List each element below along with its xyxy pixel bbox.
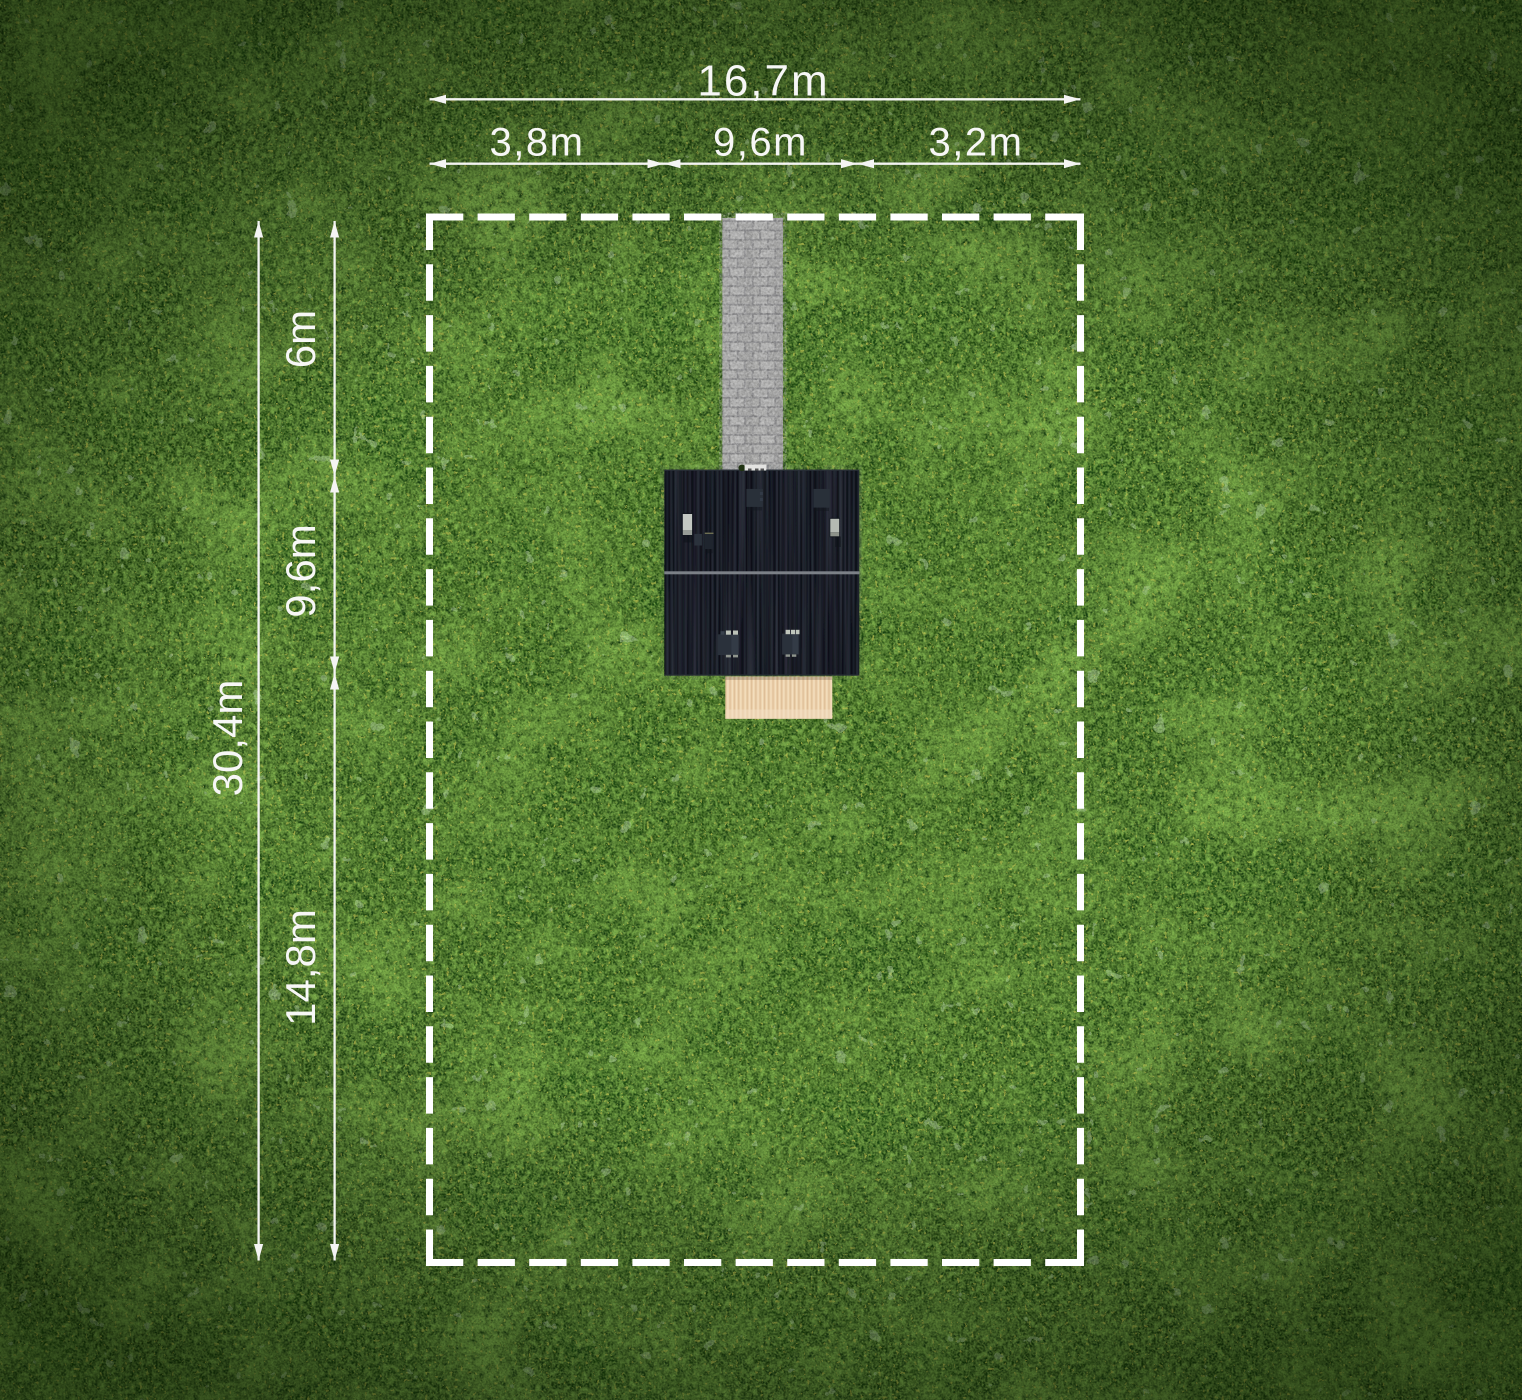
svg-text:9,6m: 9,6m (277, 524, 324, 617)
svg-text:6m: 6m (277, 310, 324, 368)
svg-text:16,7m: 16,7m (697, 57, 829, 106)
svg-text:3,8m: 3,8m (490, 121, 585, 165)
svg-text:14,8m: 14,8m (277, 909, 324, 1026)
svg-text:3,2m: 3,2m (929, 121, 1024, 165)
svg-text:9,6m: 9,6m (713, 121, 808, 165)
svg-text:30,4m: 30,4m (204, 680, 251, 797)
